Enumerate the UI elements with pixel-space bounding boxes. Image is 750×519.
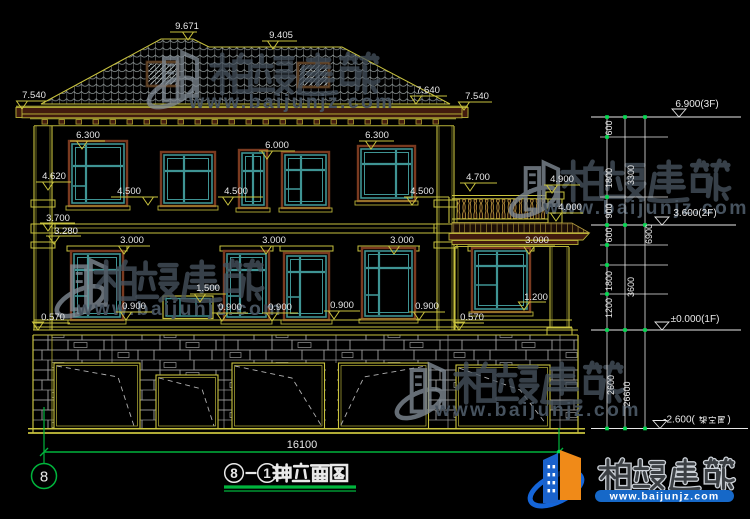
svg-text:3600: 3600 bbox=[626, 277, 636, 297]
svg-text:26600: 26600 bbox=[622, 381, 632, 406]
svg-text:0.900: 0.900 bbox=[415, 301, 439, 312]
svg-text:0.900: 0.900 bbox=[218, 302, 242, 313]
svg-text:): ) bbox=[727, 415, 730, 426]
svg-text:3.600(2F): 3.600(2F) bbox=[673, 208, 716, 219]
svg-text:2600: 2600 bbox=[606, 375, 616, 395]
svg-text:9.671: 9.671 bbox=[175, 21, 199, 32]
svg-text:3.000: 3.000 bbox=[262, 235, 286, 246]
svg-text:4.500: 4.500 bbox=[410, 186, 434, 197]
svg-text:±0.000(1F): ±0.000(1F) bbox=[671, 314, 720, 325]
svg-text:www.baijunjz.com: www.baijunjz.com bbox=[76, 298, 283, 320]
svg-text:3.000: 3.000 bbox=[525, 235, 549, 246]
svg-text:4.500: 4.500 bbox=[224, 186, 248, 197]
svg-text:600: 600 bbox=[604, 120, 614, 135]
svg-text:16100: 16100 bbox=[287, 439, 318, 451]
svg-text:6.300: 6.300 bbox=[76, 130, 100, 141]
svg-text:1800: 1800 bbox=[604, 168, 614, 188]
svg-text:6.300: 6.300 bbox=[365, 130, 389, 141]
svg-text:1800: 1800 bbox=[604, 271, 614, 291]
svg-text:4.500: 4.500 bbox=[117, 186, 141, 197]
svg-text:6900: 6900 bbox=[644, 224, 654, 244]
svg-text:6.900(3F): 6.900(3F) bbox=[675, 99, 718, 110]
svg-text:www.baijunjz.com: www.baijunjz.com bbox=[609, 491, 720, 503]
svg-text:7.540: 7.540 bbox=[22, 90, 46, 101]
svg-text:600: 600 bbox=[604, 227, 614, 242]
svg-text:1200: 1200 bbox=[604, 298, 614, 318]
svg-text:4.000: 4.000 bbox=[558, 202, 582, 213]
svg-text:0.900: 0.900 bbox=[330, 300, 354, 311]
svg-text:-2.600(: -2.600( bbox=[663, 415, 695, 426]
svg-text:1.500: 1.500 bbox=[196, 283, 220, 294]
svg-text:7.640: 7.640 bbox=[416, 85, 440, 96]
svg-text:4.900: 4.900 bbox=[550, 174, 574, 185]
svg-text:8: 8 bbox=[230, 466, 238, 481]
svg-text:1: 1 bbox=[263, 466, 271, 481]
svg-text:www.baijunjz.com: www.baijunjz.com bbox=[434, 399, 641, 421]
svg-text:9.405: 9.405 bbox=[269, 30, 293, 41]
svg-text:3.000: 3.000 bbox=[390, 235, 414, 246]
svg-text:8: 8 bbox=[40, 469, 48, 486]
svg-text:6.000: 6.000 bbox=[265, 140, 289, 151]
svg-text:www.baijunjz.com: www.baijunjz.com bbox=[188, 91, 395, 113]
svg-text:0.900: 0.900 bbox=[268, 302, 292, 313]
svg-text:900: 900 bbox=[604, 203, 614, 218]
svg-text:0.570: 0.570 bbox=[41, 312, 65, 323]
svg-text:3300: 3300 bbox=[626, 165, 636, 185]
svg-text:4.700: 4.700 bbox=[466, 172, 490, 183]
svg-text:3.000: 3.000 bbox=[120, 235, 144, 246]
svg-text:7.540: 7.540 bbox=[465, 91, 489, 102]
svg-text:4.620: 4.620 bbox=[42, 171, 66, 182]
svg-text:0.900: 0.900 bbox=[122, 301, 146, 312]
